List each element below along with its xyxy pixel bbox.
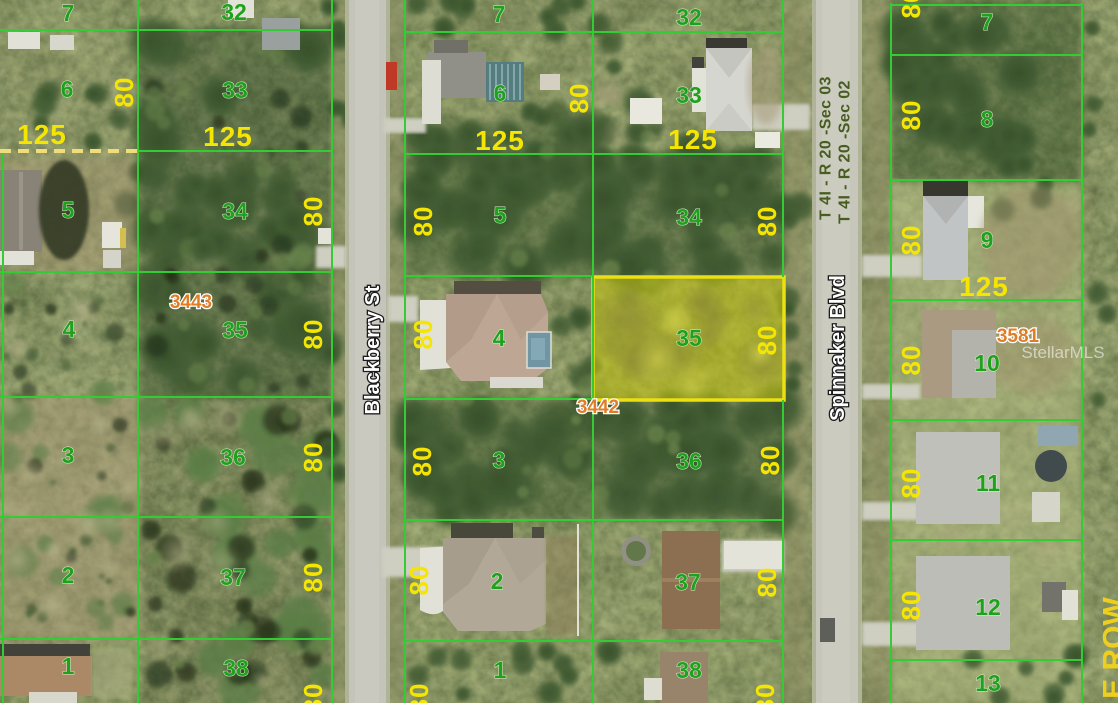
svg-text:125: 125 <box>17 119 67 150</box>
svg-text:34: 34 <box>676 204 702 230</box>
svg-text:3443: 3443 <box>170 292 212 313</box>
svg-text:4: 4 <box>493 325 506 351</box>
svg-text:3442: 3442 <box>577 397 619 418</box>
svg-text:2: 2 <box>491 568 504 594</box>
svg-text:32: 32 <box>676 4 702 30</box>
svg-text:33: 33 <box>676 82 702 108</box>
svg-text:80: 80 <box>298 196 328 227</box>
svg-text:6: 6 <box>494 80 507 106</box>
svg-text:12: 12 <box>975 594 1001 620</box>
svg-text:80: 80 <box>404 683 434 703</box>
svg-text:80: 80 <box>896 345 926 376</box>
svg-text:4: 4 <box>63 316 76 342</box>
svg-text:Blackberry St: Blackberry St <box>362 285 384 414</box>
svg-text:10: 10 <box>974 350 1000 376</box>
svg-text:StellarMLS: StellarMLS <box>1021 343 1104 362</box>
svg-text:5: 5 <box>494 202 507 228</box>
svg-text:80: 80 <box>298 319 328 350</box>
svg-text:E ROW: E ROW <box>1098 596 1118 698</box>
svg-text:80: 80 <box>755 445 785 476</box>
svg-text:T 4I - R 20 -Sec 03: T 4I - R 20 -Sec 03 <box>818 76 835 220</box>
svg-text:80: 80 <box>752 567 782 598</box>
svg-text:7: 7 <box>981 9 994 35</box>
svg-text:125: 125 <box>203 121 253 152</box>
svg-text:125: 125 <box>959 271 1009 302</box>
svg-text:80: 80 <box>752 325 782 356</box>
svg-text:80: 80 <box>407 446 437 477</box>
svg-text:125: 125 <box>475 125 525 156</box>
svg-text:8: 8 <box>981 106 994 132</box>
svg-text:7: 7 <box>493 1 506 27</box>
svg-text:125: 125 <box>668 124 718 155</box>
svg-text:35: 35 <box>222 317 248 343</box>
svg-text:3: 3 <box>62 442 75 468</box>
svg-text:6: 6 <box>61 76 74 102</box>
svg-text:80: 80 <box>750 683 780 703</box>
svg-text:34: 34 <box>222 198 248 224</box>
svg-text:1: 1 <box>494 657 507 683</box>
svg-text:37: 37 <box>220 564 246 590</box>
svg-text:13: 13 <box>975 670 1001 696</box>
svg-text:37: 37 <box>675 569 701 595</box>
svg-text:80: 80 <box>896 0 926 18</box>
svg-text:80: 80 <box>408 206 438 237</box>
svg-text:T 4I - R 20 -Sec 02: T 4I - R 20 -Sec 02 <box>837 80 854 224</box>
svg-text:35: 35 <box>676 325 702 351</box>
svg-text:80: 80 <box>896 468 926 499</box>
svg-text:80: 80 <box>408 319 438 350</box>
svg-text:36: 36 <box>676 448 702 474</box>
svg-text:3: 3 <box>493 447 506 473</box>
svg-text:80: 80 <box>896 225 926 256</box>
svg-text:2: 2 <box>62 562 75 588</box>
svg-text:80: 80 <box>298 683 328 703</box>
svg-text:9: 9 <box>981 227 994 253</box>
svg-text:80: 80 <box>109 77 139 108</box>
svg-text:33: 33 <box>222 77 248 103</box>
svg-text:80: 80 <box>404 565 434 596</box>
svg-text:80: 80 <box>298 562 328 593</box>
svg-text:32: 32 <box>221 0 247 25</box>
svg-text:5: 5 <box>62 197 75 223</box>
svg-text:1: 1 <box>62 653 75 679</box>
svg-text:38: 38 <box>676 657 702 683</box>
svg-text:80: 80 <box>298 442 328 473</box>
svg-text:Spinnaker Blvd: Spinnaker Blvd <box>827 275 849 421</box>
svg-text:38: 38 <box>223 655 249 681</box>
svg-text:36: 36 <box>220 444 246 470</box>
svg-text:7: 7 <box>62 0 75 26</box>
svg-text:80: 80 <box>564 83 594 114</box>
svg-text:80: 80 <box>896 100 926 131</box>
svg-text:80: 80 <box>896 590 926 621</box>
svg-text:11: 11 <box>976 470 1001 496</box>
svg-text:80: 80 <box>752 206 782 237</box>
